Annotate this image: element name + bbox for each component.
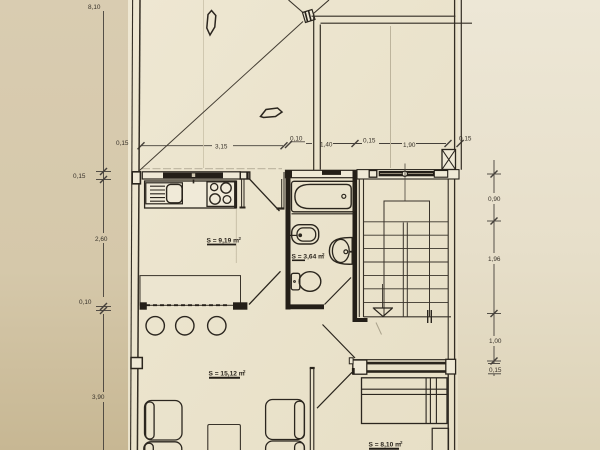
svg-text:8,10: 8,10 bbox=[88, 4, 101, 11]
svg-text:0,15: 0,15 bbox=[73, 173, 86, 180]
svg-text:0,15: 0,15 bbox=[116, 140, 129, 147]
svg-text:3,15: 3,15 bbox=[215, 143, 228, 150]
svg-text:2,60: 2,60 bbox=[95, 236, 108, 243]
svg-text:1,96: 1,96 bbox=[488, 256, 501, 263]
svg-text:0,90: 0,90 bbox=[488, 196, 501, 203]
svg-text:0,10: 0,10 bbox=[79, 299, 92, 306]
svg-text:0,10: 0,10 bbox=[290, 136, 303, 143]
svg-text:3,90: 3,90 bbox=[92, 394, 105, 401]
svg-text:1,00: 1,00 bbox=[489, 338, 502, 345]
svg-text:1,40: 1,40 bbox=[320, 142, 333, 149]
svg-text:0,15: 0,15 bbox=[489, 367, 502, 374]
svg-text:0,15: 0,15 bbox=[363, 138, 376, 145]
svg-text:S = 9,19 m: S = 9,19 m bbox=[207, 238, 240, 245]
svg-text:S = 8,10 m: S = 8,10 m bbox=[369, 442, 402, 449]
svg-text:S = 15,12 m: S = 15,12 m bbox=[209, 371, 245, 378]
svg-text:1,90: 1,90 bbox=[403, 142, 416, 149]
svg-text:S = 3,64 m: S = 3,64 m bbox=[292, 254, 325, 261]
